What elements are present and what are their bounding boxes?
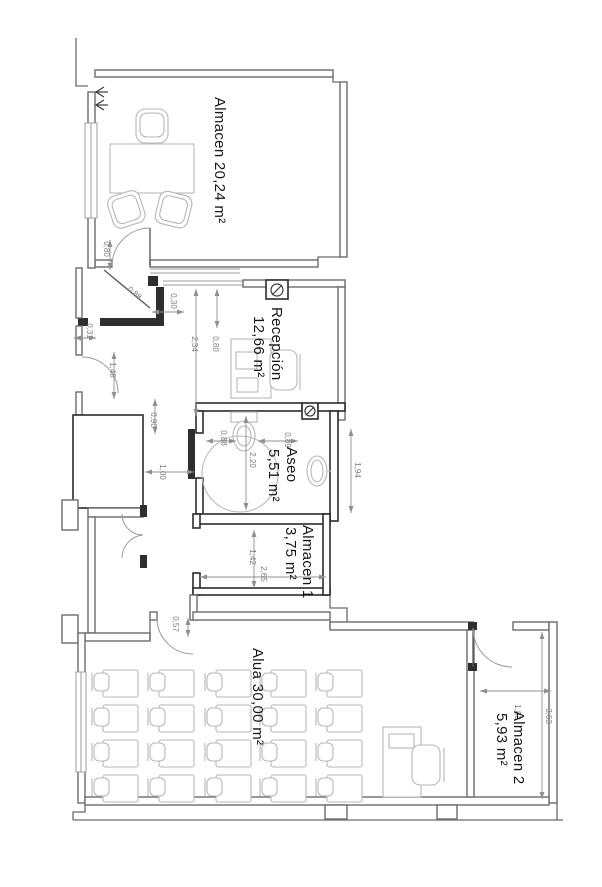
chair-right bbox=[154, 190, 194, 230]
floor-plan-drawing: 0,80 0,88 0,30 2,34 0,80 0,31 1,48 0,90 … bbox=[0, 0, 602, 887]
dim-entry-door: 1,48 bbox=[108, 362, 117, 378]
dim-entry-diagonal: 0,88 bbox=[126, 285, 144, 302]
dim-aseo-width: 2,20 bbox=[248, 452, 257, 468]
student-desk-unit bbox=[316, 740, 362, 767]
exterior-step-2 bbox=[62, 615, 78, 643]
dim-almacen1-width: 2,65 bbox=[259, 566, 268, 582]
reception-top-wall bbox=[243, 280, 345, 287]
almacen-bottomright-step bbox=[318, 257, 340, 260]
label-aula: Alua 30,00 m² bbox=[249, 648, 266, 745]
almacen2-top-wall bbox=[513, 622, 549, 630]
label-almacen2-name: Almacen 2 bbox=[510, 711, 527, 785]
vestibule-wall-h bbox=[100, 318, 164, 326]
dim-aseo-left: 0,88 bbox=[219, 430, 228, 446]
student-desk-unit bbox=[205, 670, 251, 697]
label-almacen2-area: 5,93 m² bbox=[493, 713, 510, 766]
teacher-desk-group bbox=[383, 727, 444, 797]
almacen1-step-out bbox=[330, 595, 347, 622]
aseo-door-leaf bbox=[188, 429, 195, 479]
chair-left bbox=[106, 189, 148, 231]
label-aseo-area: 5,51 m² bbox=[265, 449, 282, 502]
aula-doorframe-left bbox=[150, 612, 157, 620]
student-desk-unit bbox=[92, 740, 138, 767]
student-desk-unit bbox=[205, 705, 251, 732]
pilaster-2 bbox=[437, 805, 457, 819]
reception-right-wall bbox=[338, 287, 345, 420]
left-shaft-structure bbox=[62, 415, 143, 643]
student-desk-unit bbox=[92, 670, 138, 697]
almacen-furniture bbox=[106, 109, 194, 230]
dim-almacen-door: 0,80 bbox=[102, 241, 111, 257]
aula-top-wall-mid bbox=[193, 612, 330, 620]
dim-entry-wall: 0,30 bbox=[169, 293, 178, 309]
aseo-top-wall-right bbox=[318, 403, 345, 411]
almacen-topright-step bbox=[333, 77, 340, 82]
label-almacen1-area: 3,75 m² bbox=[282, 527, 299, 580]
student-desk-unit bbox=[148, 705, 194, 732]
teacher-chair bbox=[412, 745, 440, 785]
student-desk-unit bbox=[148, 740, 194, 767]
aseo-left-wall-upper bbox=[196, 411, 203, 433]
dim-shaft-gap: 0,90 bbox=[149, 412, 158, 428]
dim-corridor-width: 1,00 bbox=[158, 464, 167, 480]
aula-top-wall-right bbox=[330, 622, 473, 630]
almacen2-door bbox=[473, 628, 512, 667]
aseo-right-wall bbox=[330, 411, 338, 521]
pilaster-1 bbox=[325, 805, 347, 819]
exterior-spine-top bbox=[76, 38, 88, 86]
label-almacen: Almacen 20,24 m² bbox=[211, 97, 228, 224]
almacen-bottom-wall bbox=[150, 260, 318, 267]
exterior-step-1 bbox=[62, 500, 78, 530]
dim-aula-door: 0,57 bbox=[171, 616, 180, 632]
bottomleft-step bbox=[73, 805, 85, 820]
student-desk-unit bbox=[205, 740, 251, 767]
exterior-left-1 bbox=[76, 268, 82, 318]
almacen-top-wall bbox=[95, 70, 333, 77]
hall-left-wall bbox=[88, 517, 95, 633]
wall-light-symbol-2-icon bbox=[96, 100, 108, 110]
dim-aseo-right: 0,89 bbox=[283, 432, 292, 448]
dim-aseo-depth: 1,94 bbox=[353, 462, 362, 478]
aseo-almacen1-wall bbox=[196, 514, 330, 524]
student-desk-unit bbox=[316, 705, 362, 732]
almacen1-left-stub bbox=[193, 514, 200, 528]
student-desk-unit bbox=[316, 670, 362, 697]
walls-aseo-almacen1 bbox=[188, 403, 347, 622]
vestibule-wall-v bbox=[156, 287, 164, 320]
wall-light-symbol-1-icon bbox=[96, 87, 108, 97]
student-desk-grid bbox=[92, 670, 362, 802]
dim-reception-strip: 0,80 bbox=[211, 336, 220, 352]
student-desk-unit bbox=[92, 705, 138, 732]
exterior-left-2 bbox=[76, 326, 82, 355]
shaft-box bbox=[73, 415, 143, 508]
dim-reception-depth: 2,34 bbox=[190, 336, 199, 352]
dim-almacen1-height: 1,42 bbox=[248, 549, 257, 565]
label-almacen1-name: Almacen 1 bbox=[299, 525, 316, 599]
aula-furniture bbox=[92, 670, 444, 802]
almacen1-right-wall bbox=[323, 514, 330, 595]
label-aseo-name: Aseo bbox=[283, 447, 300, 482]
shaft-bottom-wall bbox=[88, 508, 143, 517]
label-recepcion-area: 12,66 m² bbox=[250, 316, 267, 378]
student-desk-unit bbox=[148, 670, 194, 697]
almacen-door bbox=[112, 228, 150, 266]
exterior-left-3 bbox=[76, 392, 82, 415]
dim-almacen2-depth: 3,63 bbox=[544, 708, 553, 724]
meeting-table bbox=[110, 144, 194, 193]
floor-plan-page: 0,80 0,88 0,30 2,34 0,80 0,31 1,48 0,90 … bbox=[0, 0, 602, 887]
aula-bottom-wall bbox=[85, 797, 549, 805]
almacen-right-wall bbox=[340, 82, 347, 257]
door-post bbox=[148, 276, 158, 286]
chair-top bbox=[136, 109, 168, 143]
label-recepcion-name: Recepción bbox=[268, 307, 285, 381]
aula-top-wall-left bbox=[85, 633, 150, 641]
aseo-top-wall bbox=[196, 403, 302, 411]
almacen-bottom-wall-stub bbox=[95, 260, 112, 267]
dim-entry-step: 0,31 bbox=[85, 323, 94, 339]
